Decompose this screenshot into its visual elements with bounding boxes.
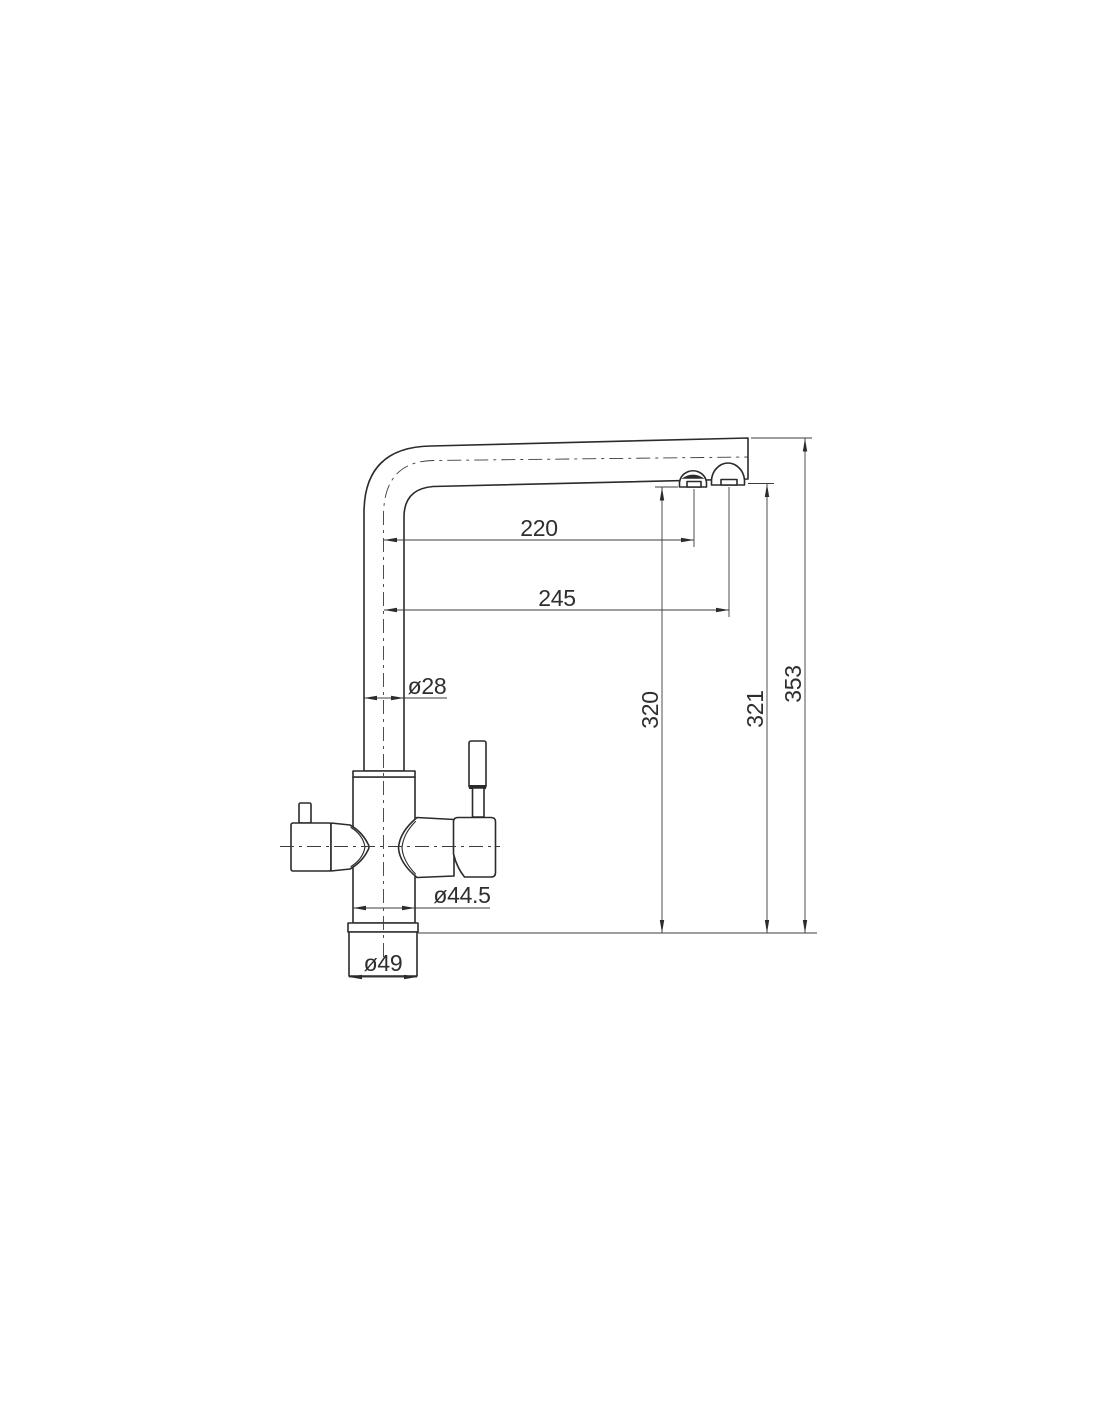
drawing-canvas: 220 245 ø28 320 321 bbox=[0, 0, 1100, 1422]
dim-label-pipe-diameter: ø28 bbox=[408, 673, 447, 699]
dim-label-spout-reach-2: 245 bbox=[538, 585, 575, 611]
dimensions: 220 245 ø28 320 321 bbox=[349, 439, 807, 980]
dim-label-outlet-height-1: 320 bbox=[637, 691, 663, 728]
dim-spout-reach-1: 220 bbox=[384, 515, 694, 542]
arrowhead bbox=[765, 920, 769, 933]
right-handle-housing bbox=[454, 818, 496, 878]
dim-label-base-diameter: ø49 bbox=[364, 950, 403, 976]
dim-spout-reach-2: 245 bbox=[384, 585, 729, 612]
dim-label-outlet-height-2: 321 bbox=[742, 690, 768, 727]
body-top-flange bbox=[353, 771, 415, 777]
right-handle-stem bbox=[473, 788, 485, 817]
right-handle-grip bbox=[469, 741, 486, 788]
dim-overall-height: 353 bbox=[780, 439, 807, 934]
dim-outlet-height-1: 320 bbox=[637, 488, 664, 934]
centerlines bbox=[280, 457, 748, 957]
right-handle-neck bbox=[399, 818, 455, 878]
arrowhead bbox=[681, 538, 694, 542]
arrowhead bbox=[660, 488, 664, 501]
arrowhead bbox=[660, 920, 664, 933]
arrowhead bbox=[765, 484, 769, 497]
arrowhead bbox=[803, 920, 807, 933]
faucet-technical-drawing: 220 245 ø28 320 321 bbox=[0, 0, 1100, 1422]
dim-label-overall-height: 353 bbox=[780, 665, 806, 702]
arrowhead bbox=[803, 439, 807, 452]
aerator-notch-right bbox=[721, 480, 737, 486]
dim-outlet-height-2: 321 bbox=[742, 484, 769, 933]
base-flange bbox=[348, 923, 418, 932]
aerator-notch-left bbox=[687, 482, 701, 488]
arrowhead bbox=[716, 608, 729, 612]
left-handle-barrel bbox=[291, 823, 331, 871]
dim-label-body-diameter: ø44.5 bbox=[433, 882, 490, 908]
dim-label-spout-reach-1: 220 bbox=[520, 515, 557, 541]
left-handle-knob bbox=[299, 803, 311, 823]
